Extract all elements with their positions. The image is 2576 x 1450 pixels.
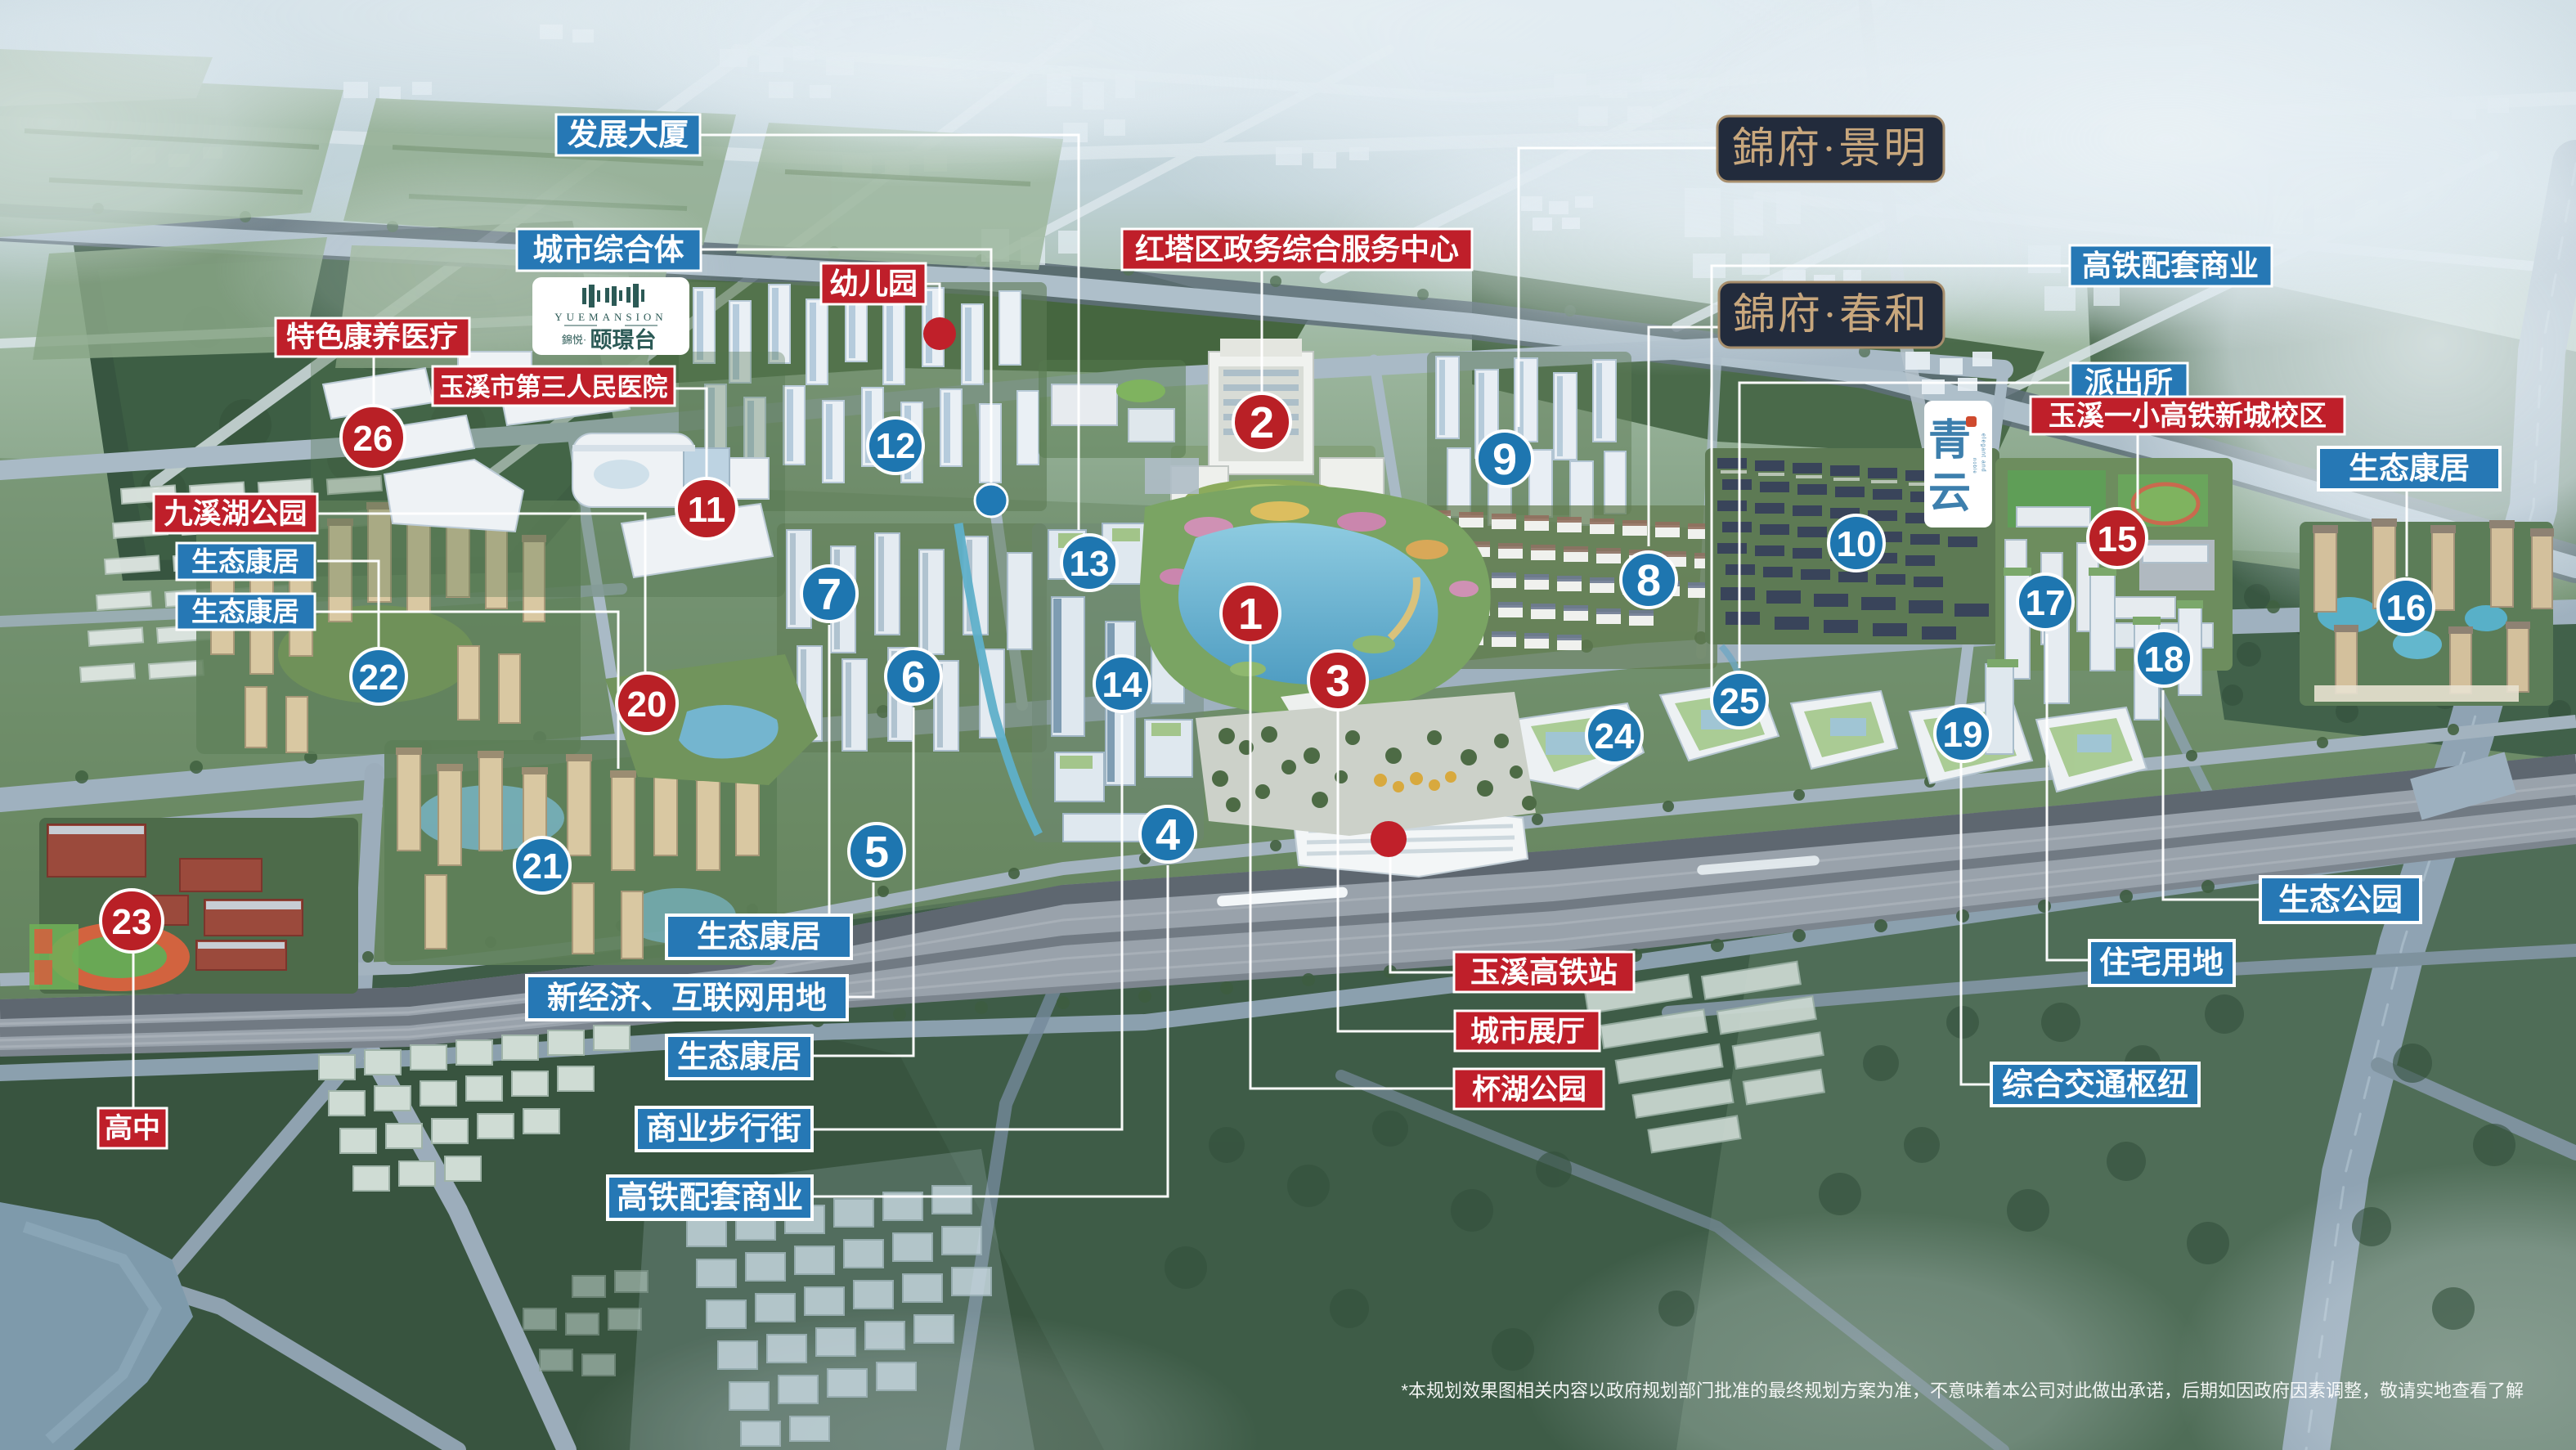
svg-text:20: 20 xyxy=(627,685,667,725)
svg-text:特色康养医疗: 特色康养医疗 xyxy=(286,321,458,353)
svg-text:杯湖公园: 杯湖公园 xyxy=(1472,1074,1586,1106)
svg-text:錦府·景明: 錦府·景明 xyxy=(1732,126,1928,173)
svg-text:新经济、互联网用地: 新经济、互联网用地 xyxy=(547,981,827,1016)
svg-text:22: 22 xyxy=(359,658,399,698)
svg-text:4: 4 xyxy=(1156,810,1180,860)
svg-text:高铁配套商业: 高铁配套商业 xyxy=(617,1181,803,1215)
svg-text:21: 21 xyxy=(523,846,563,887)
svg-text:红塔区政务综合服务中心: 红塔区政务综合服务中心 xyxy=(1135,232,1459,266)
svg-text:3: 3 xyxy=(1326,657,1350,706)
svg-text:高铁配套商业: 高铁配套商业 xyxy=(2082,249,2259,282)
svg-text:青: 青 xyxy=(1928,417,1971,465)
svg-text:住宅用地: 住宅用地 xyxy=(2099,945,2224,981)
svg-text:幼儿园: 幼儿园 xyxy=(829,267,918,300)
svg-text:玉溪一小高铁新城校区: 玉溪一小高铁新城校区 xyxy=(2049,401,2327,432)
svg-text:18: 18 xyxy=(2144,640,2184,680)
svg-text:*本规划效果图相关内容以政府规划部门批准的最终规划方案为准，: *本规划效果图相关内容以政府规划部门批准的最终规划方案为准，不意味着本公司对此做… xyxy=(1401,1380,2524,1401)
svg-text:高中: 高中 xyxy=(105,1113,160,1144)
svg-text:9: 9 xyxy=(1492,435,1517,484)
svg-text:錦府·春和: 錦府·春和 xyxy=(1733,292,1929,339)
svg-text:5: 5 xyxy=(864,828,889,877)
svg-text:生态康居: 生态康居 xyxy=(191,546,299,577)
svg-text:颐璟台: 颐璟台 xyxy=(590,327,657,352)
svg-text:錦悦·: 錦悦· xyxy=(562,334,586,346)
svg-text:26: 26 xyxy=(353,419,393,459)
svg-text:15: 15 xyxy=(2098,519,2138,559)
svg-text:1: 1 xyxy=(1238,590,1263,639)
svg-text:23: 23 xyxy=(112,902,152,942)
svg-text:城市展厅: 城市展厅 xyxy=(1470,1016,1585,1048)
svg-text:7: 7 xyxy=(817,570,841,619)
svg-text:九溪湖公园: 九溪湖公园 xyxy=(164,498,307,530)
svg-text:生态康居: 生态康居 xyxy=(2349,451,2470,485)
svg-text:2: 2 xyxy=(1250,398,1274,447)
svg-text:14: 14 xyxy=(1102,665,1142,705)
svg-text:12: 12 xyxy=(876,426,916,466)
svg-text:商业步行街: 商业步行街 xyxy=(646,1112,801,1147)
svg-text:玉溪市第三人民医院: 玉溪市第三人民医院 xyxy=(440,373,668,402)
svg-text:派出所: 派出所 xyxy=(2085,366,2173,399)
svg-text:11: 11 xyxy=(688,490,726,530)
svg-text:生态康居: 生态康居 xyxy=(697,919,821,954)
svg-text:生态康居: 生态康居 xyxy=(191,596,299,626)
svg-text:玉溪高铁站: 玉溪高铁站 xyxy=(1470,955,1618,989)
svg-text:YUEMANSION: YUEMANSION xyxy=(554,311,666,323)
svg-text:发展大厦: 发展大厦 xyxy=(568,118,689,151)
svg-text:noble: noble xyxy=(1972,458,1977,474)
svg-text:城市综合体: 城市综合体 xyxy=(533,232,684,267)
svg-text:16: 16 xyxy=(2386,588,2426,628)
svg-text:生态康居: 生态康居 xyxy=(677,1039,801,1075)
svg-text:elegant and: elegant and xyxy=(1981,433,1986,473)
svg-text:综合交通枢纽: 综合交通枢纽 xyxy=(2002,1067,2188,1102)
svg-text:6: 6 xyxy=(901,653,926,702)
svg-text:10: 10 xyxy=(1837,524,1877,564)
svg-text:生态公园: 生态公园 xyxy=(2278,883,2403,918)
svg-text:25: 25 xyxy=(1720,681,1760,721)
svg-text:13: 13 xyxy=(1070,544,1110,584)
svg-text:8: 8 xyxy=(1636,556,1661,605)
svg-text:17: 17 xyxy=(2026,583,2066,623)
svg-text:24: 24 xyxy=(1595,716,1635,756)
svg-text:19: 19 xyxy=(1943,715,1983,755)
svg-text:云: 云 xyxy=(1928,470,1971,517)
